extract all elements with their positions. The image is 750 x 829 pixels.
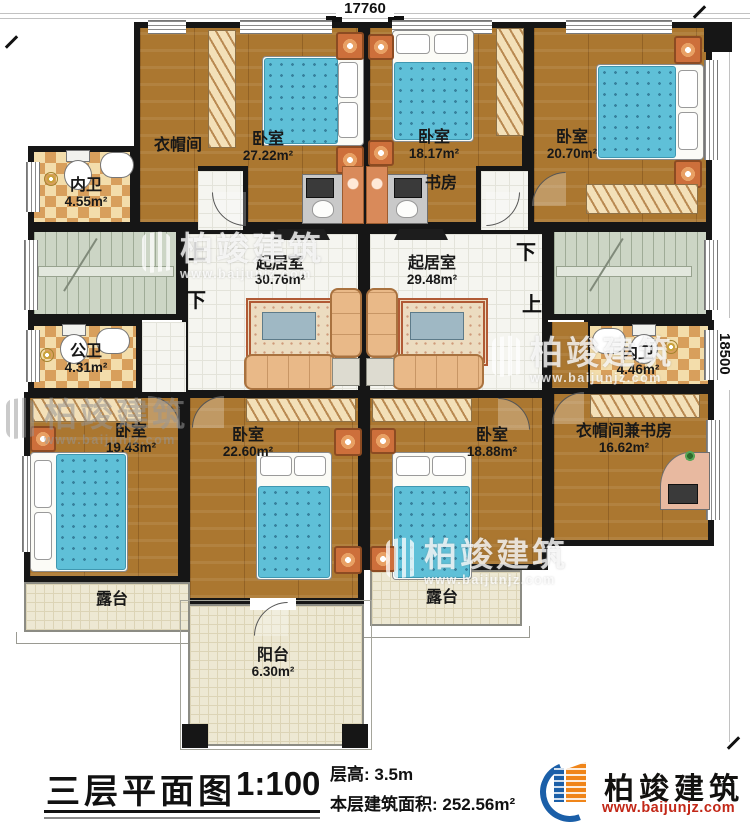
tv — [272, 229, 330, 240]
nightstand — [334, 428, 362, 456]
room-label-closet1: 衣帽间 — [154, 138, 202, 155]
sofa — [330, 288, 362, 358]
nightstand — [368, 140, 394, 166]
room-label-bedroom4: 卧室 19.43m² — [106, 424, 156, 455]
window — [26, 330, 40, 382]
dim-tick — [693, 5, 706, 18]
window — [704, 240, 718, 310]
room-label-closet-study: 衣帽间兼书房 16.62m² — [576, 424, 672, 455]
stair-down-label-left: 下 — [186, 284, 206, 313]
floor-drain — [44, 172, 58, 186]
bed-pillow — [396, 34, 430, 54]
plant — [684, 450, 696, 462]
chair — [312, 200, 334, 218]
bed-pillow — [338, 102, 358, 138]
bed-pillow — [678, 112, 698, 150]
floor-height-text: 层高: 3.5m — [330, 760, 413, 785]
top-dim-line-2 — [0, 18, 750, 19]
window — [240, 20, 332, 34]
floor-area-text: 本层建筑面积: 252.56m² — [330, 790, 515, 815]
stair-landing-left — [38, 266, 174, 277]
room-label-study: 书房 — [425, 176, 457, 193]
column-block — [704, 22, 732, 52]
room-label-terrace1: 露台 — [96, 592, 128, 609]
side-table — [332, 358, 360, 386]
sofa — [244, 354, 336, 390]
stair-up-label-right: 上 — [522, 288, 542, 317]
bed-pillow — [678, 70, 698, 108]
wardrobe — [246, 398, 356, 422]
stair-down-label-right: 下 — [516, 236, 536, 265]
window — [704, 330, 718, 380]
coffee-table — [410, 312, 464, 340]
computer-monitor — [394, 178, 422, 198]
floor-drain — [664, 340, 678, 354]
room-label-bath2: 公卫 4.31m² — [65, 344, 108, 375]
bed-quilt — [394, 486, 470, 578]
bed-pillow — [260, 456, 292, 476]
stair-landing-right — [556, 266, 692, 277]
dresser — [342, 166, 364, 224]
bed-pillow — [434, 34, 468, 54]
room-label-bath1: 内卫 4.55m² — [65, 178, 108, 209]
dim-top-value: 17760 — [336, 0, 394, 17]
nightstand — [370, 546, 396, 572]
floor-drain — [40, 348, 54, 362]
room-label-bedroom2: 卧室 18.17m² — [409, 130, 459, 161]
room-label-balcony: 阳台 6.30m² — [252, 648, 295, 679]
room-label-terrace2: 露台 — [426, 590, 458, 607]
terrace-left-railing — [16, 632, 198, 644]
side-table — [366, 358, 394, 386]
chair — [396, 200, 418, 218]
wardrobe — [208, 30, 236, 148]
room-label-bedroom6: 卧室 18.88m² — [467, 428, 517, 459]
title-underline-2 — [44, 817, 320, 819]
plan-title: 三层平面图 — [46, 764, 236, 813]
bed-pillow — [396, 456, 430, 476]
room-label-bedroom1: 卧室 27.22m² — [243, 132, 293, 163]
bed-pillow — [34, 460, 52, 508]
window — [26, 162, 40, 212]
bed-pillow — [432, 456, 466, 476]
room-label-bedroom5: 卧室 22.60m² — [223, 428, 273, 459]
sink — [100, 152, 134, 178]
room-label-bath3: 内卫 4.46m² — [617, 346, 660, 377]
wardrobe — [586, 184, 698, 214]
hall-patch-left — [142, 322, 186, 394]
bed-pillow — [338, 62, 358, 98]
room-label-living1: 起居室 30.76m² — [255, 256, 305, 287]
wardrobe — [32, 398, 142, 422]
nightstand — [674, 36, 702, 64]
terrace-right-railing — [362, 626, 530, 638]
nightstand — [368, 34, 394, 60]
dim-tick — [5, 35, 18, 48]
bed-quilt — [598, 66, 676, 158]
bed-quilt — [258, 486, 330, 578]
brand-logo-building-blue — [554, 768, 564, 802]
plan-scale: 1:100 — [236, 765, 320, 803]
window — [24, 240, 38, 310]
balcony-post — [342, 724, 368, 748]
coffee-table — [262, 312, 316, 340]
nightstand — [30, 426, 56, 452]
floor-plan-canvas: 17760 18500 上 下 下 上 — [0, 0, 750, 829]
nightstand — [336, 32, 364, 60]
wardrobe — [496, 28, 524, 136]
brand-logo — [540, 758, 596, 816]
brand-url: www.baijunjz.com — [602, 800, 735, 816]
dresser — [366, 166, 388, 224]
hall-patch-right — [546, 322, 588, 390]
bed-pillow — [34, 512, 52, 560]
nightstand — [334, 546, 362, 574]
room-label-bedroom3: 卧室 20.70m² — [547, 130, 597, 161]
computer-monitor — [306, 178, 334, 198]
sofa — [366, 288, 398, 358]
tv — [394, 229, 448, 240]
wardrobe — [372, 398, 472, 422]
sofa — [392, 354, 484, 390]
window — [148, 20, 186, 34]
computer-monitor — [668, 484, 698, 504]
window — [704, 60, 718, 160]
dim-right-value: 18500 — [716, 318, 733, 390]
stair-up-label-left: 上 — [186, 236, 206, 265]
title-underline — [44, 810, 320, 813]
bed-quilt — [56, 454, 126, 570]
wardrobe — [590, 394, 700, 418]
balcony-post — [182, 724, 208, 748]
window — [566, 20, 672, 34]
nightstand — [370, 428, 396, 454]
bed-pillow — [294, 456, 326, 476]
room-label-living2: 起居室 29.48m² — [407, 256, 457, 287]
